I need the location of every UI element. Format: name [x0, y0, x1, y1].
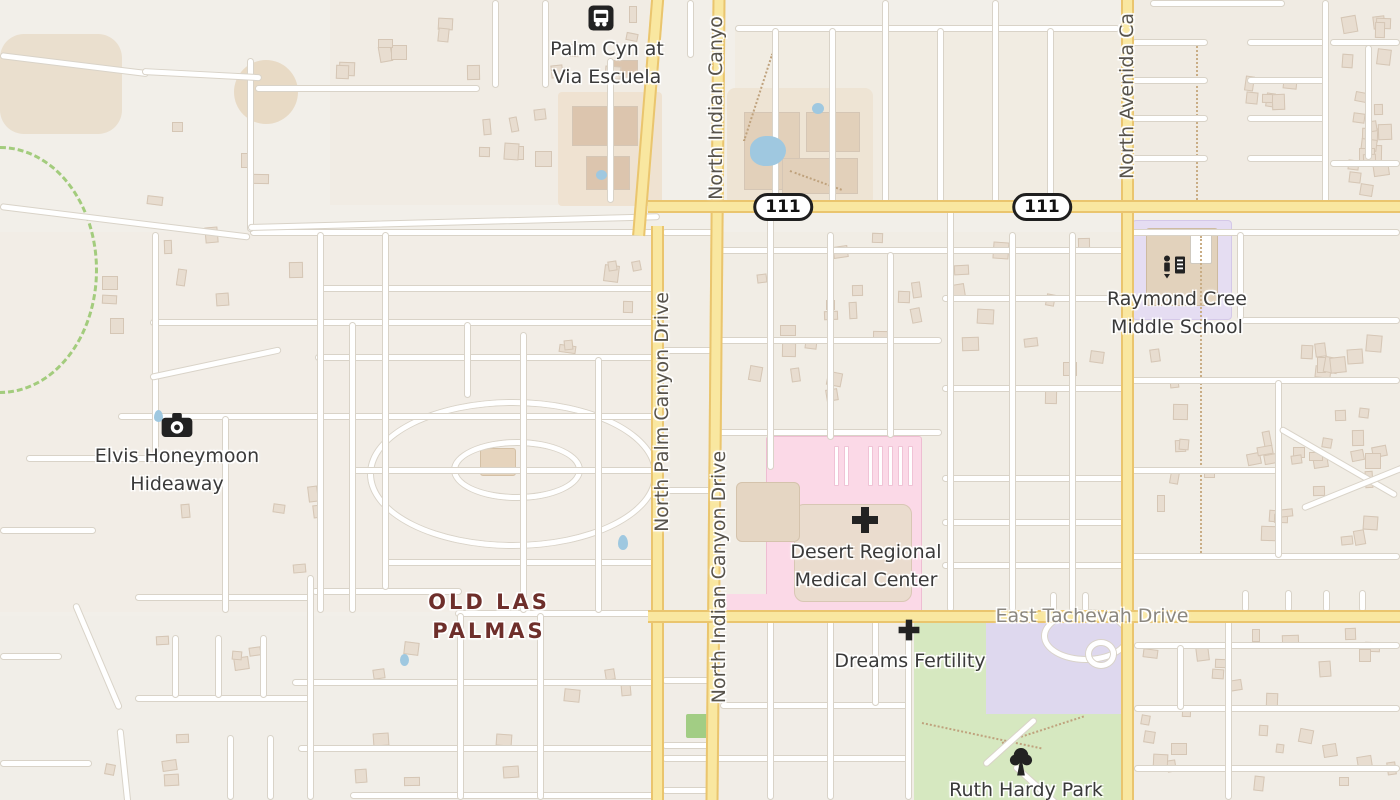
poi-label-dreams-fertility: Dreams Fertility	[834, 647, 985, 675]
neighborhood-line: OLD LAS	[428, 588, 550, 617]
tree-icon	[1008, 747, 1035, 778]
street-label-tachevah: East Tachevah Drive	[996, 602, 1189, 630]
poi-label-desert-regional: Desert Regional Medical Center	[790, 538, 941, 594]
poi-label-line: Elvis Honeymoon	[95, 442, 259, 470]
poi-label-raymond-cree-school: Raymond Cree Middle School	[1107, 285, 1247, 341]
route-shield-label: 111	[1024, 197, 1060, 217]
poi-label-line: Desert Regional	[790, 538, 941, 566]
neighborhood-line: PALMAS	[428, 617, 550, 646]
poi-label-line: Ruth Hardy Park	[949, 776, 1103, 800]
map-canvas[interactable]: Palm Cyn at Via Escuela 111 111 North Pa…	[0, 0, 1400, 800]
route-shield-label: 111	[765, 197, 801, 217]
bus-icon	[589, 6, 614, 31]
neighborhood-label-old-las-palmas: OLD LAS PALMAS	[428, 588, 550, 646]
camera-icon	[162, 413, 193, 437]
poi-label-line: Middle School	[1107, 313, 1247, 341]
poi-label-line: Raymond Cree	[1107, 285, 1247, 313]
poi-label-line: Medical Center	[790, 566, 941, 594]
medical-cross-icon	[897, 618, 921, 642]
labels-layer: Palm Cyn at Via Escuela 111 111 North Pa…	[0, 0, 1400, 800]
poi-label-transit-stop: Palm Cyn at Via Escuela	[550, 35, 664, 91]
poi-label-line: Hideaway	[95, 470, 259, 498]
street-label-indian-canyon-top: North Indian Canyo	[702, 16, 730, 200]
poi-label-line: Palm Cyn at	[550, 35, 664, 63]
hospital-cross-icon	[850, 505, 880, 535]
street-label-avenida-caballeros: North Avenida Ca	[1113, 13, 1141, 179]
school-icon	[1161, 254, 1189, 281]
poi-label-ruth-hardy-park: Ruth Hardy Park	[949, 776, 1103, 800]
street-label-palm-canyon: North Palm Canyon Drive	[648, 292, 676, 532]
route-shield-111-west: 111	[753, 193, 813, 221]
route-shield-111-east: 111	[1012, 193, 1072, 221]
poi-label-elvis-hideaway: Elvis Honeymoon Hideaway	[95, 442, 259, 498]
poi-label-line: Via Escuela	[550, 63, 664, 91]
poi-label-line: Dreams Fertility	[834, 647, 985, 675]
street-label-indian-canyon: North Indian Canyon Drive	[705, 451, 733, 703]
